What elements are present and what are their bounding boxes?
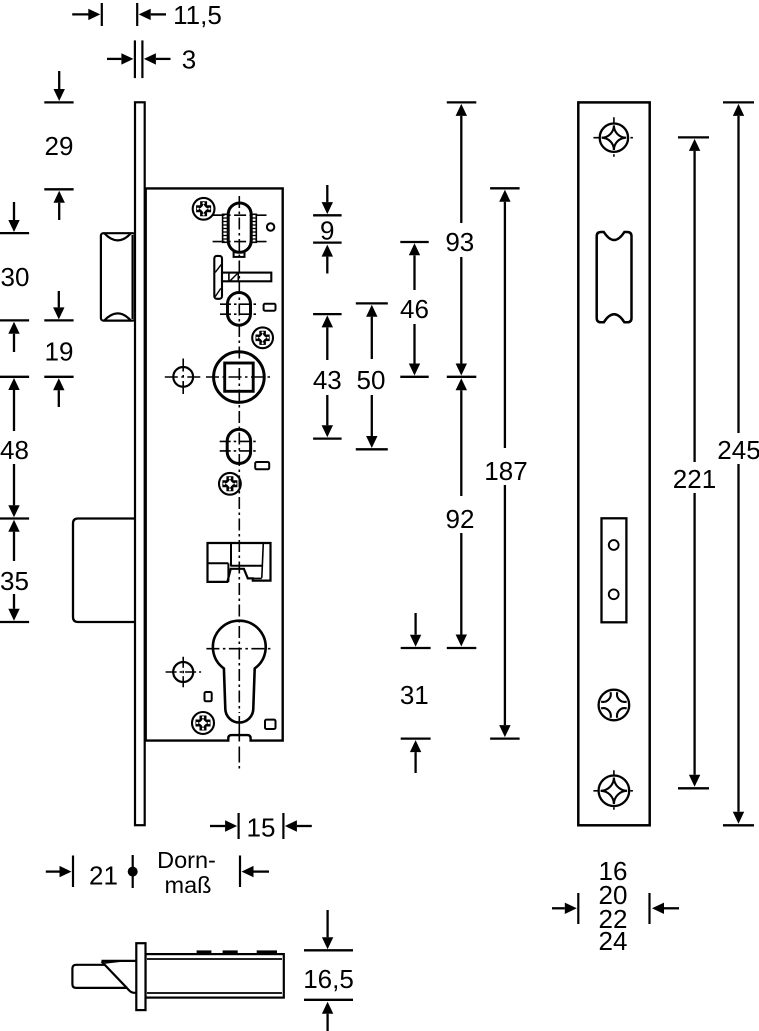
svg-text:46: 46 [400,294,429,324]
svg-text:30: 30 [1,262,30,292]
svg-text:31: 31 [400,680,429,710]
svg-text:43: 43 [313,365,342,395]
svg-text:11,5: 11,5 [173,0,222,30]
svg-text:15: 15 [247,813,276,843]
svg-text:21: 21 [89,861,118,891]
svg-text:92: 92 [446,504,475,534]
svg-text:24: 24 [599,926,628,956]
svg-text:50: 50 [357,365,386,395]
svg-text:245: 245 [717,435,759,465]
svg-text:Dorn-: Dorn- [157,847,216,873]
svg-text:35: 35 [0,566,29,596]
svg-text:48: 48 [0,435,29,465]
svg-text:93: 93 [445,227,474,257]
svg-text:9: 9 [320,215,334,245]
svg-text:29: 29 [45,131,74,161]
svg-text:221: 221 [673,464,716,494]
svg-text:16,5: 16,5 [303,964,354,994]
svg-text:maß: maß [165,872,212,898]
svg-text:19: 19 [45,337,74,367]
svg-text:3: 3 [182,45,196,75]
svg-text:187: 187 [484,456,527,486]
